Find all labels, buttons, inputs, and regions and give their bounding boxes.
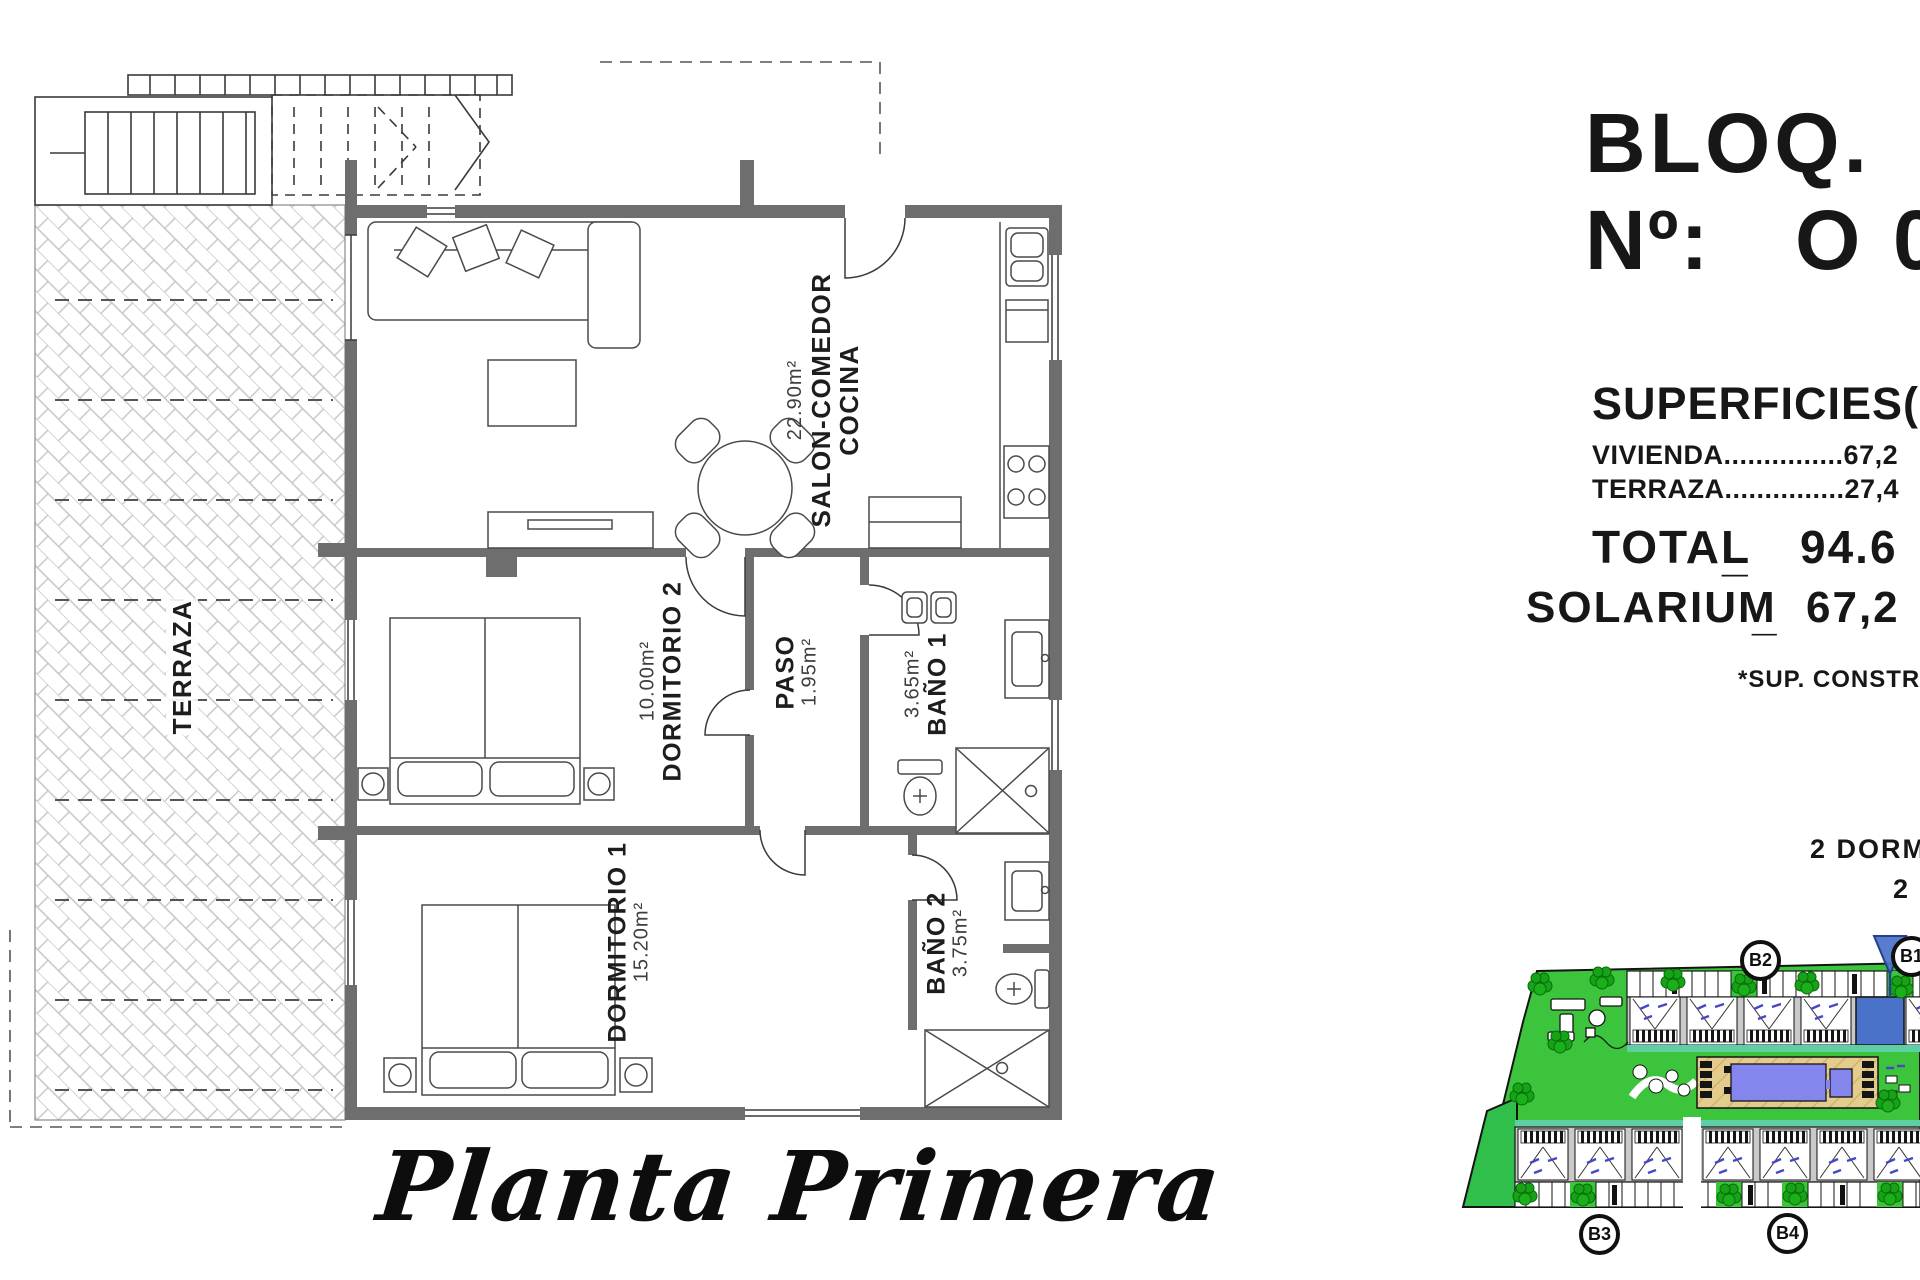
floorplan-page: 22.90m² SALON-COMEDOR COCINA 10.00m² DOR… bbox=[0, 0, 1920, 1280]
block-label-b4: B4 bbox=[1767, 1213, 1808, 1254]
room-area: 22.90m² bbox=[785, 360, 807, 440]
total-separator: _ bbox=[1722, 528, 1750, 582]
room-name: PASO bbox=[773, 635, 800, 710]
site-plan bbox=[1463, 936, 1920, 1210]
room-area: 15.20m² bbox=[632, 902, 654, 982]
room-label-bano1: 3.65m² BAÑO 1 bbox=[903, 632, 952, 735]
pool bbox=[1731, 1064, 1826, 1101]
room-name: DORMITORIO 2 bbox=[659, 581, 686, 782]
block-title: BLOQ. bbox=[1585, 95, 1871, 192]
room-name: SALON-COMEDOR bbox=[807, 273, 835, 528]
room-label-terraza: TERRAZA bbox=[166, 599, 198, 736]
room-name: DORMITORIO 1 bbox=[605, 842, 632, 1043]
unit-number-label: Nº: bbox=[1585, 192, 1710, 289]
room-area: 3.65m² bbox=[903, 650, 925, 718]
construida-note: *SUP. CONSTRUID bbox=[1738, 666, 1920, 694]
staircase bbox=[35, 75, 512, 205]
room-label-dormitorio2: 10.00m² DORMITORIO 2 bbox=[638, 581, 687, 782]
solarium-separator: _ bbox=[1752, 591, 1778, 641]
solarium-value: 67,2 bbox=[1806, 583, 1900, 633]
room-label-bano2: BAÑO 2 3.75m² bbox=[924, 891, 973, 994]
vivienda-line: VIVIENDA...............67,2 bbox=[1592, 440, 1898, 471]
room-name: COCINA bbox=[835, 344, 863, 456]
unit-number-value: O bbox=[1795, 192, 1862, 289]
bedrooms-note: 2 DORMI bbox=[1810, 834, 1920, 865]
room-area: 10.00m² bbox=[638, 641, 660, 721]
block-label-b2: B2 bbox=[1740, 940, 1781, 981]
superficies-heading: SUPERFICIES(M bbox=[1592, 378, 1920, 430]
room-area: 1.95m² bbox=[800, 638, 822, 706]
baths-note: 2 bbox=[1893, 874, 1910, 905]
room-name: BAÑO 1 bbox=[924, 632, 951, 735]
terraza-line: TERRAZA...............27,4 bbox=[1592, 474, 1899, 505]
highlighted-unit bbox=[1856, 997, 1904, 1045]
unit-number-value-cut: 0 bbox=[1893, 192, 1920, 289]
room-label-salon: 22.90m² SALON-COMEDOR COCINA bbox=[785, 273, 863, 528]
room-label-dormitorio1: DORMITORIO 1 15.20m² bbox=[605, 842, 654, 1043]
plan-title: Planta Primera bbox=[372, 1130, 1227, 1243]
room-name: BAÑO 2 bbox=[924, 891, 951, 994]
block-label-b3: B3 bbox=[1579, 1214, 1620, 1255]
total-value: 94.6 bbox=[1800, 520, 1898, 574]
solarium-label: SOLARIUM bbox=[1526, 583, 1777, 633]
room-name: TERRAZA bbox=[168, 600, 196, 735]
room-label-paso: PASO 1.95m² bbox=[773, 635, 822, 710]
room-area: 3.75m² bbox=[951, 909, 973, 977]
